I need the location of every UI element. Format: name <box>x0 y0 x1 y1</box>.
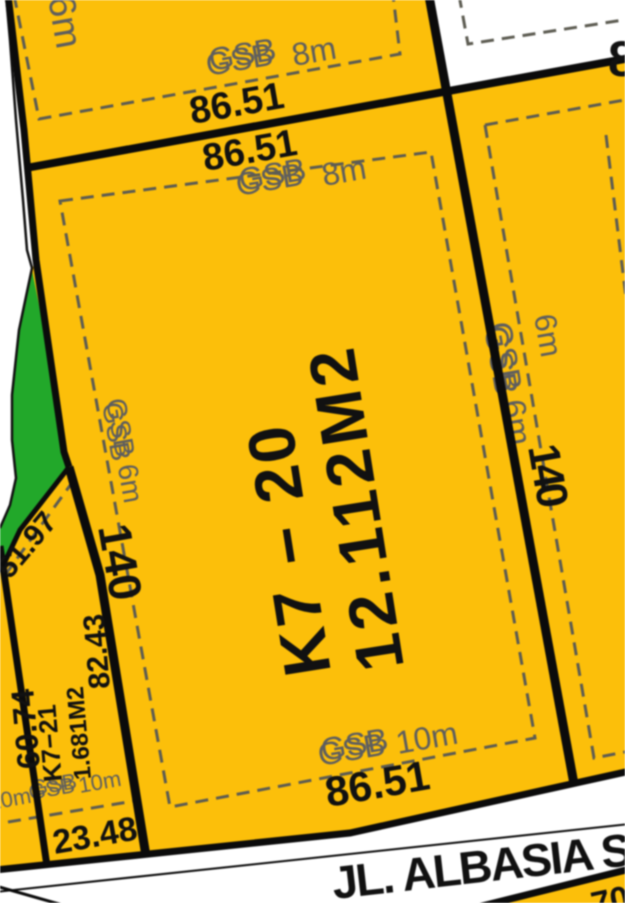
svg-text:6m: 6m <box>527 311 569 360</box>
svg-text:82.43: 82.43 <box>78 613 117 691</box>
svg-text:8m: 8m <box>319 150 369 193</box>
svg-text:8: 8 <box>608 31 625 87</box>
